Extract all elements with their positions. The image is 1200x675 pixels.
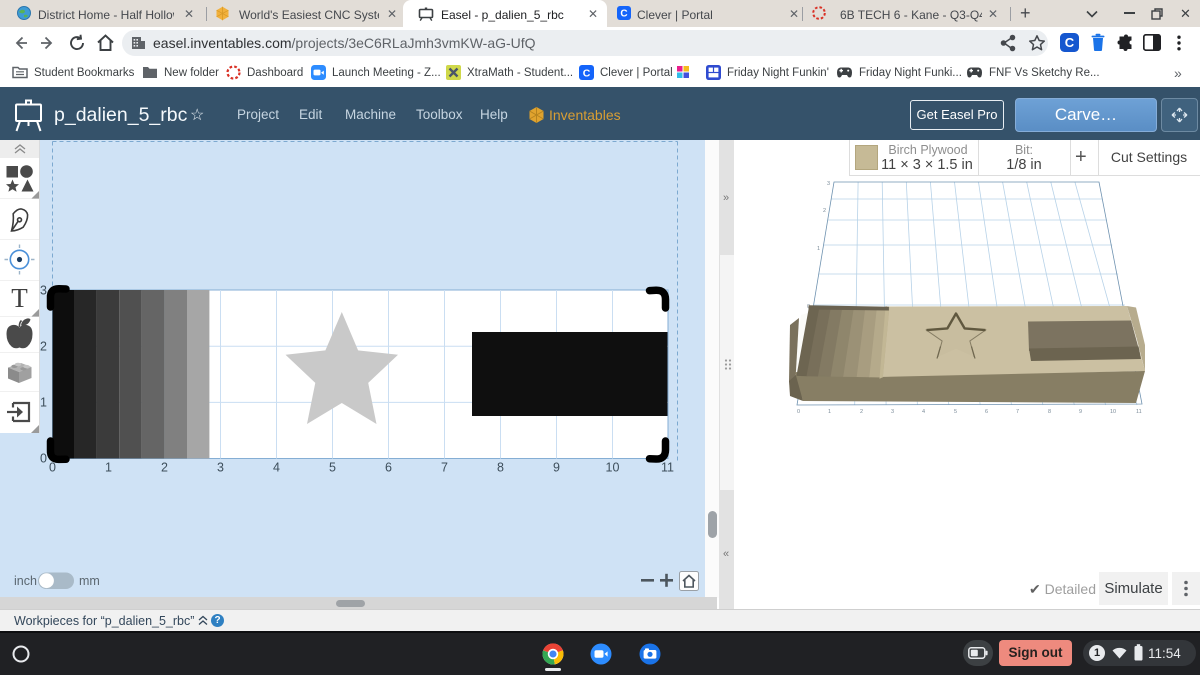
svg-text:3: 3 (891, 409, 894, 415)
svg-text:3: 3 (827, 181, 830, 187)
svg-text:11: 11 (1136, 409, 1142, 415)
svg-text:1: 1 (105, 461, 112, 475)
svg-text:3: 3 (40, 284, 47, 298)
svg-text:2: 2 (823, 208, 826, 214)
svg-text:4: 4 (273, 461, 280, 475)
svg-text:1: 1 (828, 409, 831, 415)
svg-text:9: 9 (1079, 409, 1082, 415)
svg-text:T: T (11, 283, 28, 313)
svg-text:10: 10 (1110, 409, 1116, 415)
svg-text:0: 0 (797, 409, 800, 415)
svg-text:C: C (1065, 35, 1075, 50)
svg-text:7: 7 (1016, 409, 1019, 415)
svg-text:0: 0 (40, 452, 47, 466)
svg-text:5: 5 (954, 409, 957, 415)
svg-text:8: 8 (497, 461, 504, 475)
svg-text:1: 1 (817, 246, 820, 252)
svg-text:7: 7 (441, 461, 448, 475)
svg-text:8: 8 (1048, 409, 1051, 415)
svg-text:11: 11 (661, 461, 674, 475)
svg-text:0: 0 (49, 461, 56, 475)
svg-text:9: 9 (553, 461, 560, 475)
svg-text:10: 10 (606, 461, 620, 475)
svg-text:2: 2 (860, 409, 863, 415)
svg-text:2: 2 (161, 461, 168, 475)
svg-text:2: 2 (40, 340, 47, 354)
svg-text:1: 1 (40, 396, 47, 410)
svg-text:6: 6 (385, 461, 392, 475)
svg-text:C: C (583, 67, 591, 79)
svg-text:inch: inch (14, 574, 37, 588)
svg-text:6: 6 (985, 409, 988, 415)
svg-text:4: 4 (922, 409, 925, 415)
svg-text:C: C (620, 9, 627, 20)
svg-text:mm: mm (79, 574, 100, 588)
svg-text:3: 3 (217, 461, 224, 475)
svg-text:5: 5 (329, 461, 336, 475)
